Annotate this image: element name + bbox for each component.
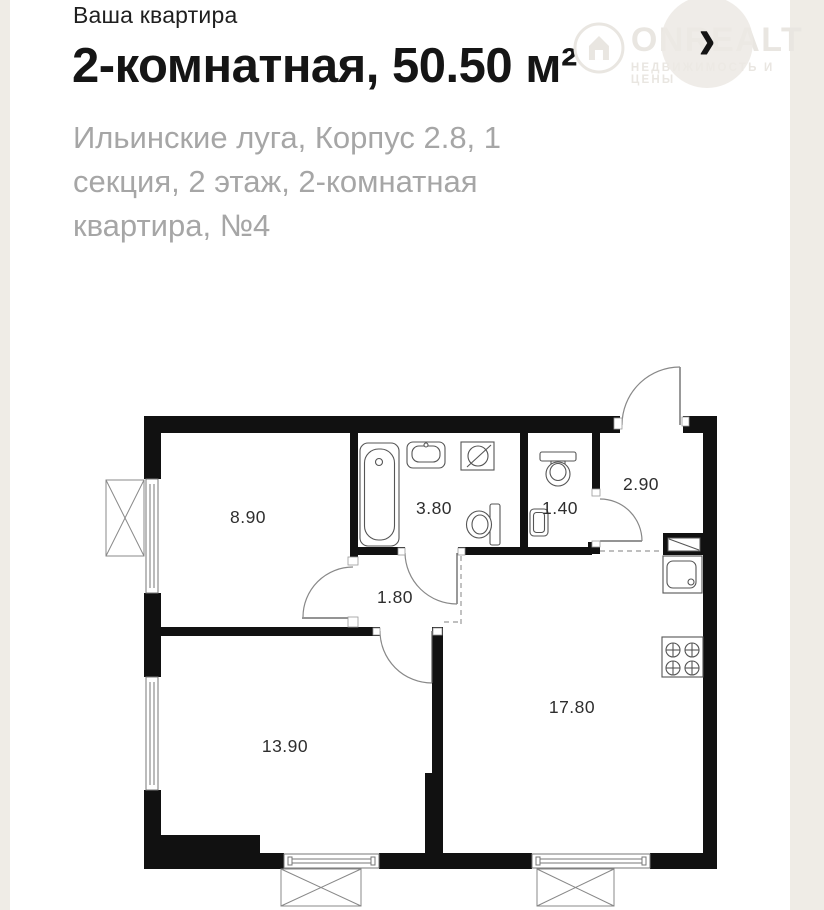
door-room-bottom-left: [380, 631, 432, 683]
shaft-box-bottom-left: [281, 869, 361, 906]
shaft-box-left: [106, 480, 144, 556]
door-room-top-left: [302, 567, 353, 618]
room-area-label: 8.90: [230, 507, 266, 527]
next-button[interactable]: ›: [661, 0, 753, 88]
sink-icon: [407, 442, 445, 468]
bathtub-icon: [360, 443, 399, 546]
window-bottom-right: [532, 854, 650, 868]
entrance-door: [622, 367, 680, 425]
shaft-box-bottom-right: [537, 869, 614, 906]
wc-toilet-icon: [540, 452, 576, 486]
stove-icon: [662, 637, 703, 677]
window-left-lower: [146, 677, 158, 790]
room-area-label: 1.80: [377, 587, 413, 607]
room-area-label: 3.80: [416, 498, 452, 518]
house-in-circle-icon: [571, 20, 627, 76]
kitchen-sink-icon: [663, 556, 702, 593]
page-title: 2-комнатная, 50.50 м²: [72, 38, 577, 94]
room-area-label: 1.40: [542, 498, 578, 518]
room-area-label: 2.90: [623, 474, 659, 494]
page-background: 8.90 3.80 1.40 2.90 1.80 13.90 17.80 ONR…: [0, 0, 824, 910]
door-wc: [600, 499, 642, 541]
window-bottom-left: [284, 854, 379, 868]
toilet-icon: [467, 504, 501, 545]
room-area-label: 13.90: [262, 736, 308, 756]
washing-machine-icon: [461, 442, 494, 470]
listing-subtitle: Ильинские луга, Корпус 2.8, 1 секция, 2 …: [73, 116, 551, 248]
window-left-upper: [146, 479, 158, 593]
page-eyebrow: Ваша квартира: [73, 2, 237, 29]
chevron-right-icon: ›: [698, 9, 715, 69]
room-area-label: 17.80: [549, 697, 595, 717]
open-boundaries: [444, 551, 663, 626]
vent-shaft-icon: [668, 538, 700, 551]
